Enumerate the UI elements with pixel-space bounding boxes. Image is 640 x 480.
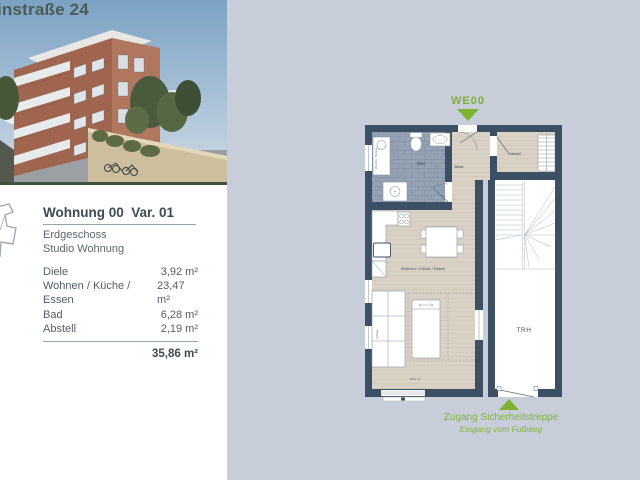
room-area: 3,92 m² bbox=[161, 265, 198, 279]
info-panel: instraße 24 Wohnung 00 Var. 01 Erdgescho… bbox=[0, 0, 227, 480]
access-label: Zugang Sicherheitstreppe bbox=[420, 412, 582, 423]
wardrobe-label: Schrank bbox=[375, 329, 379, 339]
wardrobe: Schrank bbox=[372, 291, 405, 367]
table-row: Diele 3,92 m² bbox=[43, 265, 198, 279]
street-title: instraße 24 bbox=[0, 0, 89, 20]
room-area: 23,47 m² bbox=[157, 279, 198, 307]
kitchen-sink bbox=[374, 243, 391, 257]
room-label-trh: TRH bbox=[517, 327, 532, 334]
exterior-step bbox=[383, 397, 425, 401]
floor-plan: Waschm. Trockner Schrank bbox=[363, 123, 565, 401]
total-area: 35,86 m² bbox=[43, 348, 198, 360]
apartment-info: Wohnung 00 Var. 01 Erdgeschoss Studio Wo… bbox=[43, 205, 196, 256]
room-table: Diele 3,92 m² Wohnen / Küche / Essen 23,… bbox=[43, 265, 198, 360]
unit-label: WE00 bbox=[437, 95, 499, 107]
dining-set bbox=[421, 227, 463, 257]
hall-floor2 bbox=[452, 180, 475, 210]
dining-table bbox=[426, 227, 457, 257]
apartment-type: Studio Wohnung bbox=[43, 243, 196, 257]
room-label-bad: Bad bbox=[417, 161, 426, 166]
footprint-icon bbox=[0, 202, 19, 260]
access-arrow-icon bbox=[499, 399, 519, 410]
table-row: Abstell 2,19 m² bbox=[43, 322, 198, 336]
bed bbox=[412, 300, 440, 358]
washer-label: Waschm. Trockner bbox=[374, 147, 378, 169]
room-area: 6,28 m² bbox=[161, 308, 198, 322]
access-sublabel: Eingang vom Fußweg bbox=[420, 424, 582, 434]
stove bbox=[398, 212, 410, 226]
brh-annotation: BRH 30 bbox=[410, 377, 421, 381]
room-name: Bad bbox=[43, 308, 63, 322]
room-label-living: Wohnen / Küche / Essen bbox=[401, 266, 445, 271]
table-row: Wohnen / Küche / Essen 23,47 m² bbox=[43, 279, 198, 307]
table-row: Bad 6,28 m² bbox=[43, 308, 198, 322]
room-label-abstell: Abstell bbox=[509, 152, 521, 156]
room-label-diele: Diele bbox=[454, 164, 464, 169]
table-divider bbox=[43, 341, 198, 342]
room-name: Diele bbox=[43, 265, 68, 279]
apartment-floor: Erdgeschoss bbox=[43, 229, 196, 243]
storage-shelf bbox=[538, 135, 555, 171]
toilet bbox=[411, 137, 422, 151]
entrance-arrow-icon bbox=[457, 109, 479, 121]
building-photo: instraße 24 bbox=[0, 0, 227, 185]
building-photo-art bbox=[0, 0, 227, 182]
room-area: 2,19 m² bbox=[161, 322, 198, 336]
room-name: Abstell bbox=[43, 322, 76, 336]
hall-floor bbox=[452, 132, 490, 180]
apartment-title: Wohnung 00 Var. 01 bbox=[43, 205, 196, 225]
room-name: Wohnen / Küche / Essen bbox=[43, 279, 157, 307]
